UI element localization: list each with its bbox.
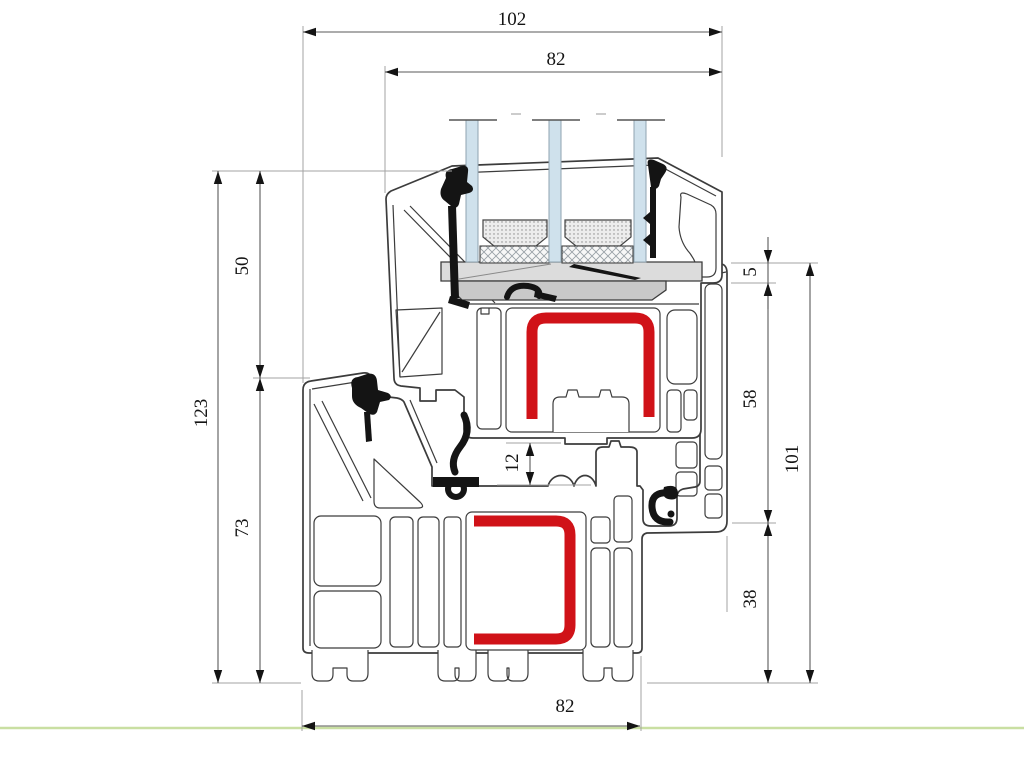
dimension-label-lower-height-right: 38	[740, 590, 761, 609]
dimension-label-sash-width-top: 82	[547, 49, 566, 70]
frame-foot	[488, 650, 528, 681]
frame-foot	[312, 650, 368, 681]
spacer-sealant-left	[480, 246, 549, 263]
dimension-label-hardware-gap: 12	[502, 454, 523, 473]
dimension-frame-width-bottom: 82	[302, 696, 640, 730]
dimension-sash-width-top: 82	[385, 49, 722, 76]
spacer-desiccant-right	[565, 220, 631, 246]
dimension-lower-height-right: 38	[740, 523, 772, 683]
dimension-label-lower-height-left: 73	[232, 519, 253, 538]
dimension-label-overall-width-top: 102	[498, 9, 527, 30]
frame-foot	[583, 650, 633, 681]
dimension-lower-height-left: 73	[232, 378, 264, 683]
dimension-label-frame-height-right: 101	[782, 445, 803, 474]
dimension-label-overlap-right: 5	[740, 267, 761, 277]
dimension-overall-width-top: 102	[303, 9, 722, 36]
dimension-label-frame-width-bottom: 82	[556, 696, 575, 717]
dimension-hardware-gap: 12	[502, 443, 534, 485]
frame-foot	[438, 650, 476, 681]
glass-pane-middle	[549, 120, 561, 262]
dimension-total-height-left: 123	[191, 171, 222, 683]
dimension-overlap-right: 5	[740, 237, 772, 309]
spacer-sealant-right	[562, 246, 633, 263]
dimension-label-mid-height-right: 58	[740, 390, 761, 409]
dimension-label-total-height-left: 123	[191, 399, 212, 428]
center-gasket	[453, 415, 467, 472]
dimension-mid-height-right: 58	[740, 283, 772, 523]
dimension-label-upper-height-left: 50	[232, 257, 253, 276]
dimension-upper-height-left: 50	[232, 171, 264, 378]
window-section-drawing: 102821235073558381011282	[0, 0, 1024, 768]
dimension-frame-height-right: 101	[782, 263, 814, 683]
spacer-desiccant-left	[483, 220, 547, 246]
technical-drawing-canvas: 102821235073558381011282	[0, 0, 1024, 768]
